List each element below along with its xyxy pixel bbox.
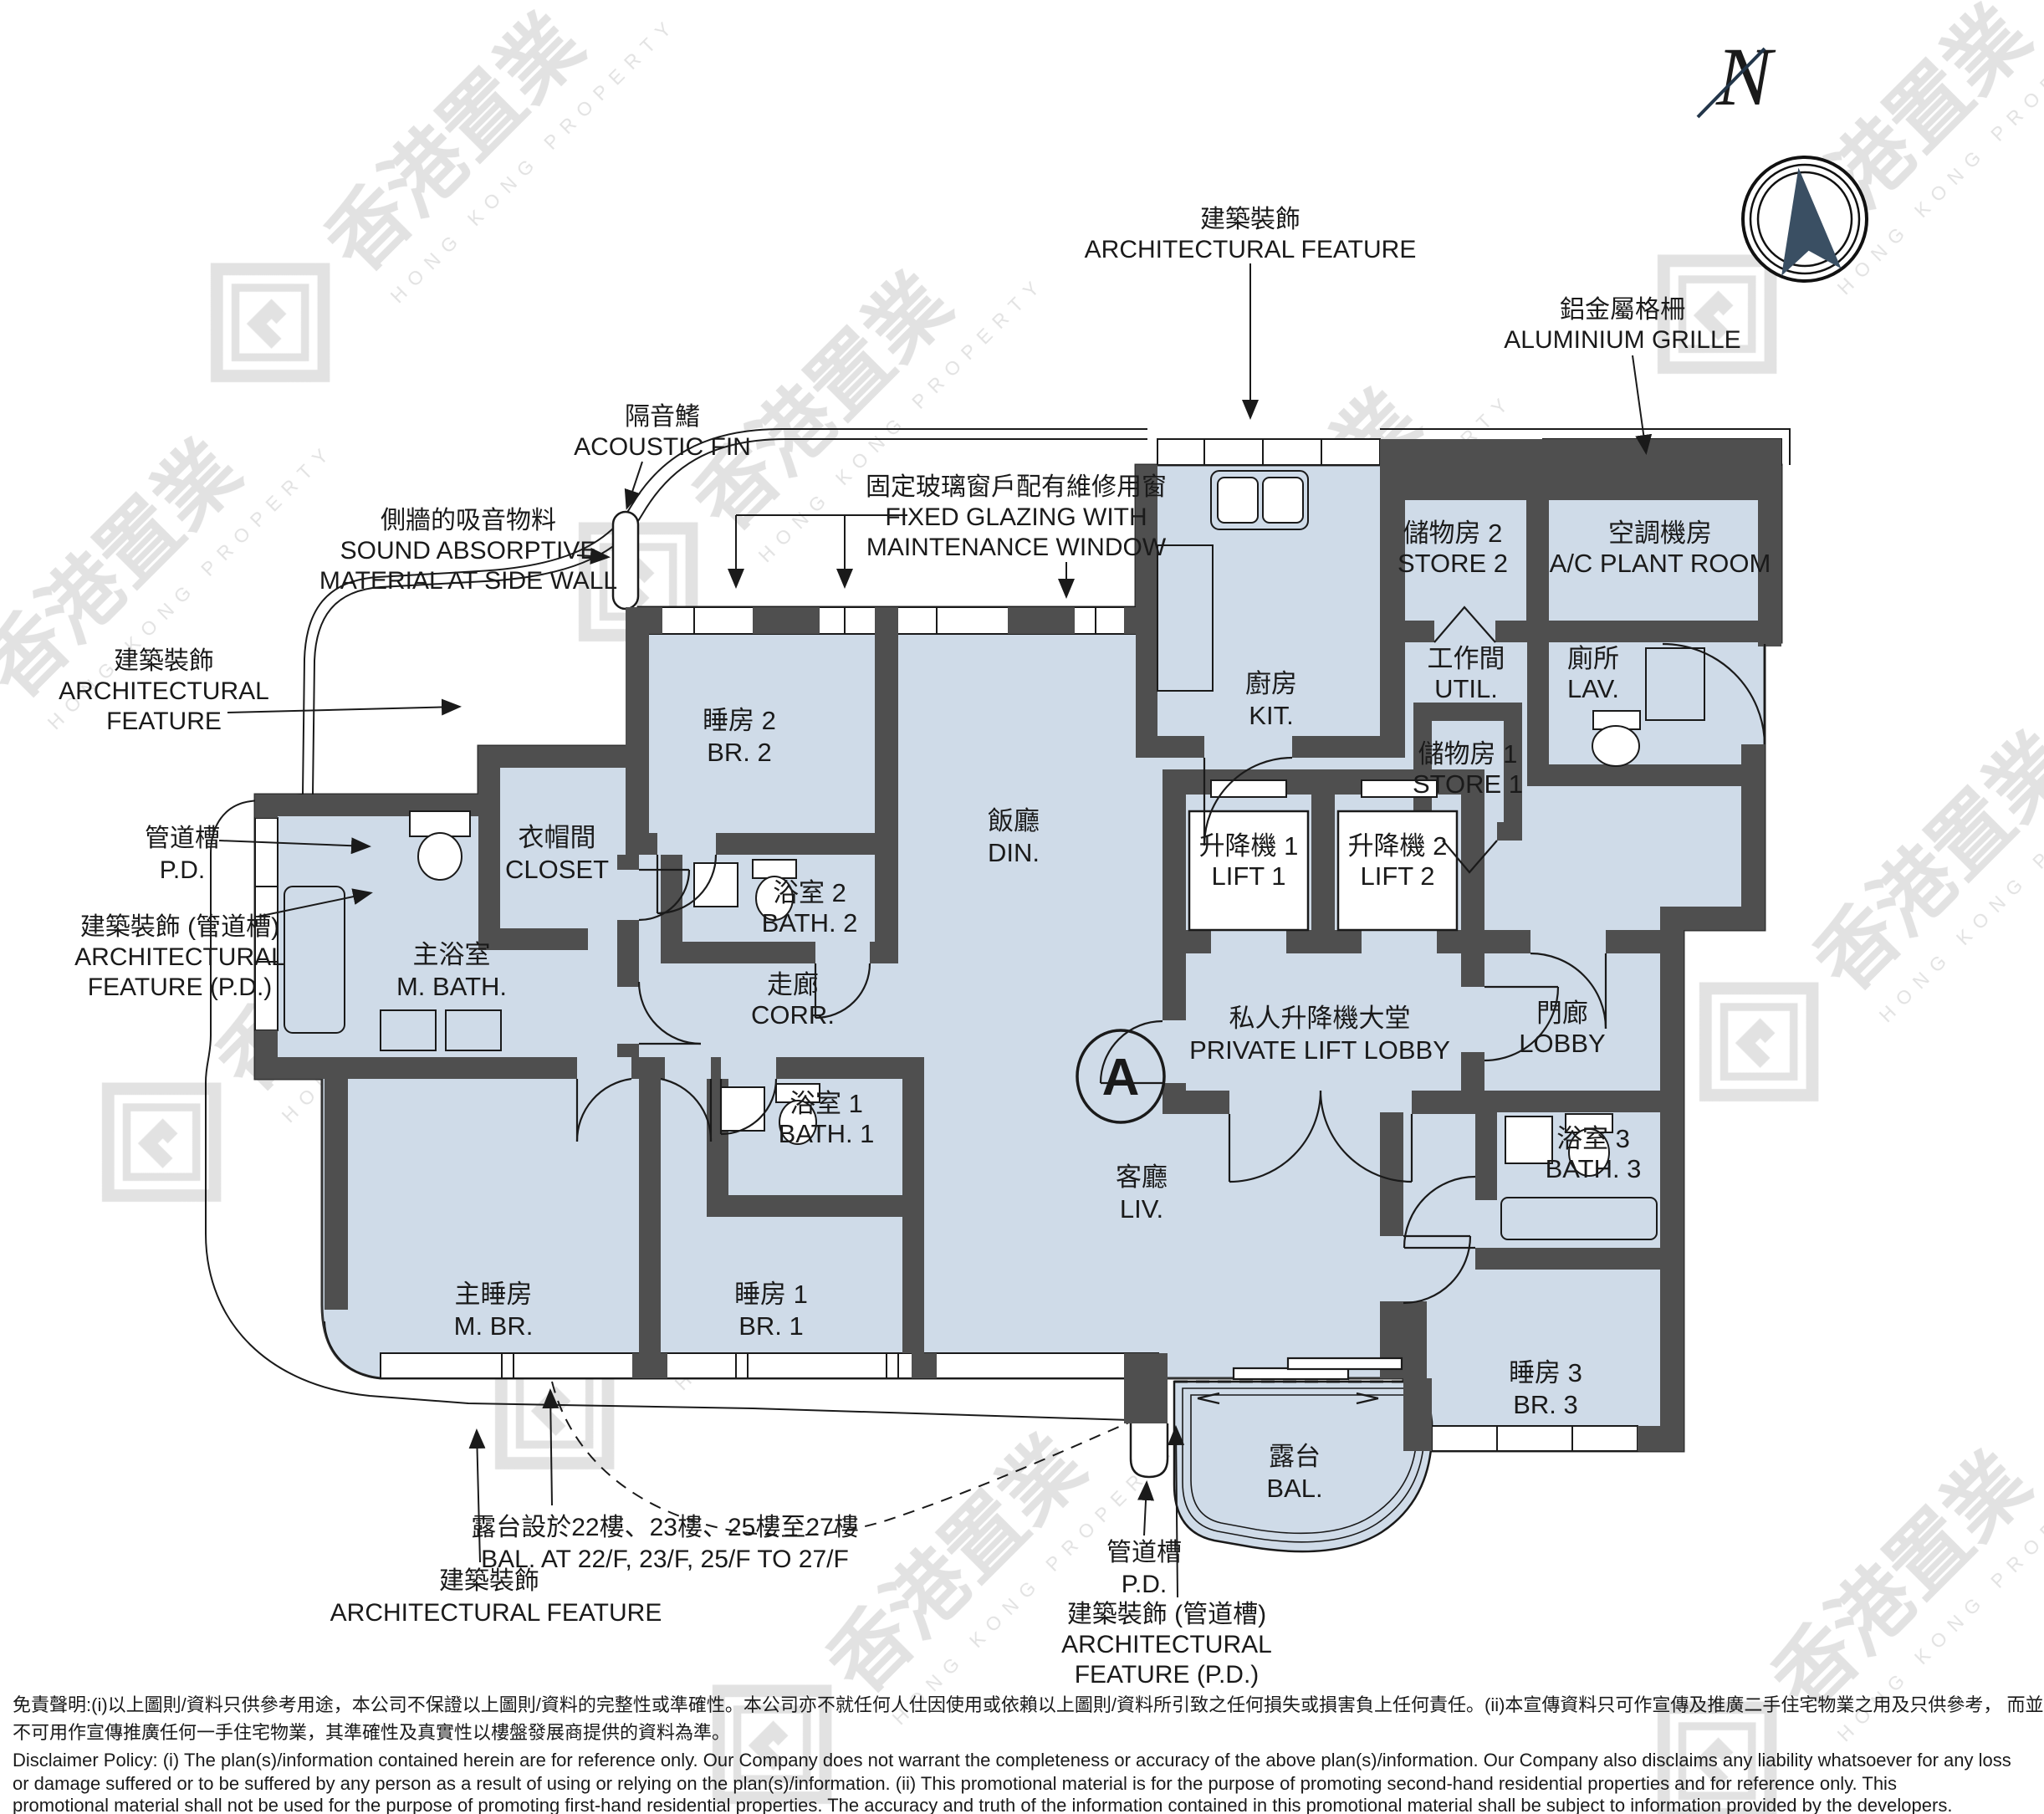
room-label-acpr-zh: 空調機房 bbox=[1608, 519, 1712, 548]
disclaimer-zh2: 不可用作宣傳推廣任何一手住宅物業，其準確性及真實性以樓盤發展商提供的資料為準。 bbox=[13, 1722, 730, 1743]
disclaimer: 免責聲明:(i)以上圖則/資料只供參考用途，本公司不保證以上圖則/資料的完整性或… bbox=[13, 1694, 2044, 1814]
room-label-bath3-zh: 浴室 3 bbox=[1556, 1124, 1630, 1153]
ann-sound-en1: SOUND ABSORPTIVE bbox=[340, 537, 597, 565]
room-label-lift1-zh: 升降機 1 bbox=[1199, 831, 1299, 861]
room-label-store1-zh: 儲物房 1 bbox=[1418, 739, 1518, 769]
room-label-br3-en: BR. 3 bbox=[1513, 1390, 1578, 1419]
ann-af-top-zh: 建築裝飾 bbox=[1200, 206, 1300, 233]
room-label-lav-zh: 廁所 bbox=[1567, 644, 1619, 673]
room-label-bath2-zh: 浴室 2 bbox=[773, 878, 846, 907]
ann-fin-en: ACOUSTIC FIN bbox=[574, 433, 751, 461]
room-label-br3-zh: 睡房 3 bbox=[1509, 1358, 1582, 1387]
ann-afpdl-zh: 建築裝飾 (管道槽) bbox=[80, 913, 279, 941]
room-label-closet-en: CLOSET bbox=[505, 855, 609, 884]
ann-balat-zh: 露台設於22樓、23樓、25樓至27樓 bbox=[471, 1514, 858, 1541]
room-label-lift2-en: LIFT 2 bbox=[1360, 861, 1434, 891]
room-label-lav-en: LAV. bbox=[1567, 674, 1619, 703]
ann-afl-en1: ARCHITECTURAL bbox=[59, 677, 269, 705]
room-label-din-en: DIN. bbox=[988, 838, 1040, 867]
room-label-kit-zh: 廚房 bbox=[1245, 669, 1297, 698]
disclaimer-en3: promotional material shall not be used f… bbox=[13, 1795, 1952, 1814]
ann-glz-en1: FIXED GLAZING WITH bbox=[885, 503, 1147, 531]
ann-pdl-en: P.D. bbox=[160, 856, 205, 884]
floor-plan: 香港置業 HONG KONG PROPERTY 香港置業HONG KONG PR… bbox=[0, 0, 2044, 1814]
room-label-liv-en: LIV. bbox=[1120, 1194, 1163, 1224]
room-label-acpr-en: A/C PLANT ROOM bbox=[1550, 549, 1771, 578]
sink-icon bbox=[694, 863, 738, 907]
room-label-corr-en: CORR. bbox=[751, 1000, 835, 1030]
pd-chute bbox=[1131, 1423, 1168, 1477]
room-label-mbr-zh: 主睡房 bbox=[455, 1280, 533, 1309]
ann-pdl-zh: 管道槽 bbox=[145, 825, 220, 852]
ann-afpdb-en1: ARCHITECTURAL bbox=[1061, 1631, 1272, 1658]
ann-afpdl-en1: ARCHITECTURAL bbox=[74, 943, 285, 971]
room-label-bal-zh: 露台 bbox=[1269, 1442, 1321, 1471]
ann-afpdl-en2: FEATURE (P.D.) bbox=[88, 973, 273, 1001]
room-label-store2-en: STORE 2 bbox=[1398, 549, 1508, 578]
north-label: N bbox=[1715, 30, 1776, 123]
ann-balat-en: BAL. AT 22/F, 23/F, 25/F TO 27/F bbox=[481, 1546, 849, 1573]
ann-glz-en2: MAINTENANCE WINDOW bbox=[866, 534, 1167, 561]
room-label-bath2-en: BATH. 2 bbox=[762, 908, 858, 938]
room-label-lobby-en: LOBBY bbox=[1519, 1029, 1605, 1058]
room-label-mbath-zh: 主浴室 bbox=[413, 940, 491, 969]
room-label-util-zh: 工作間 bbox=[1428, 644, 1505, 673]
room-label-closet-zh: 衣帽間 bbox=[519, 823, 596, 852]
room-label-kit-en: KIT. bbox=[1249, 701, 1293, 730]
ann-glz-zh: 固定玻璃窗戶配有維修用窗 bbox=[866, 473, 1167, 501]
room-label-bal-en: BAL. bbox=[1266, 1474, 1322, 1503]
ann-afpdb-en2: FEATURE (P.D.) bbox=[1075, 1661, 1260, 1689]
disclaimer-en2: or damage suffered or to be suffered by … bbox=[13, 1773, 1897, 1794]
room-label-lift1-en: LIFT 1 bbox=[1211, 861, 1285, 891]
room-label-lift2-zh: 升降機 2 bbox=[1348, 831, 1448, 861]
room-label-pll-en: PRIVATE LIFT LOBBY bbox=[1189, 1035, 1450, 1065]
room-label-liv-zh: 客廳 bbox=[1116, 1162, 1168, 1192]
ann-af-top-en: ARCHITECTURAL FEATURE bbox=[1085, 236, 1417, 263]
ann-fin-zh: 隔音鰭 bbox=[625, 403, 700, 431]
ann-afl-en2: FEATURE bbox=[106, 708, 222, 735]
room-label-br2-zh: 睡房 2 bbox=[703, 706, 776, 735]
floor-plan-page: 香港置業 HONG KONG PROPERTY 香港置業HONG KONG PR… bbox=[0, 0, 2044, 1814]
room-label-mbr-en: M. BR. bbox=[454, 1311, 534, 1341]
disclaimer-zh1: 免責聲明:(i)以上圖則/資料只供參考用途，本公司不保證以上圖則/資料的完整性或… bbox=[13, 1694, 2044, 1715]
room-label-bath3-en: BATH. 3 bbox=[1546, 1154, 1642, 1183]
room-label-store2-zh: 儲物房 2 bbox=[1403, 519, 1503, 548]
ann-afl-zh: 建築裝飾 bbox=[114, 647, 214, 675]
ann-pdb-en: P.D. bbox=[1122, 1571, 1167, 1598]
room-label-pll-zh: 私人升降機大堂 bbox=[1229, 1004, 1411, 1033]
watermark: 香港置業 HONG KONG PROPERTY bbox=[163, 0, 682, 434]
room-label-br2-en: BR. 2 bbox=[707, 738, 772, 767]
ann-afpdb-zh: 建築裝飾 (管道槽) bbox=[1067, 1601, 1266, 1628]
room-label-util-en: UTIL. bbox=[1434, 674, 1498, 703]
room-label-din-zh: 飯廳 bbox=[988, 806, 1040, 835]
room-label-lobby-zh: 門廊 bbox=[1536, 999, 1588, 1028]
unit-marker-letter: A bbox=[1102, 1049, 1140, 1106]
ann-sound-zh: 側牆的吸音物料 bbox=[381, 507, 556, 534]
ann-alu-en: ALUMINIUM GRILLE bbox=[1504, 326, 1740, 354]
ann-alu-zh: 鋁金屬格柵 bbox=[1560, 296, 1685, 324]
room-label-bath1-en: BATH. 1 bbox=[779, 1119, 875, 1148]
room-label-store1-en: STORE 1 bbox=[1413, 769, 1523, 799]
disclaimer-en1: Disclaimer Policy: (i) The plan(s)/infor… bbox=[13, 1750, 2011, 1771]
room-label-mbath-en: M. BATH. bbox=[396, 972, 507, 1001]
ann-pdb-zh: 管道槽 bbox=[1106, 1539, 1182, 1566]
ann-sound-en2: MATERIAL AT SIDE WALL bbox=[319, 567, 617, 595]
room-label-br1-en: BR. 1 bbox=[738, 1311, 804, 1341]
room-label-corr-zh: 走廊 bbox=[767, 970, 819, 999]
room-label-br1-zh: 睡房 1 bbox=[734, 1280, 808, 1309]
room-label-bath1-zh: 浴室 1 bbox=[789, 1089, 863, 1118]
ann-afb-en: ARCHITECTURAL FEATURE bbox=[330, 1599, 662, 1627]
